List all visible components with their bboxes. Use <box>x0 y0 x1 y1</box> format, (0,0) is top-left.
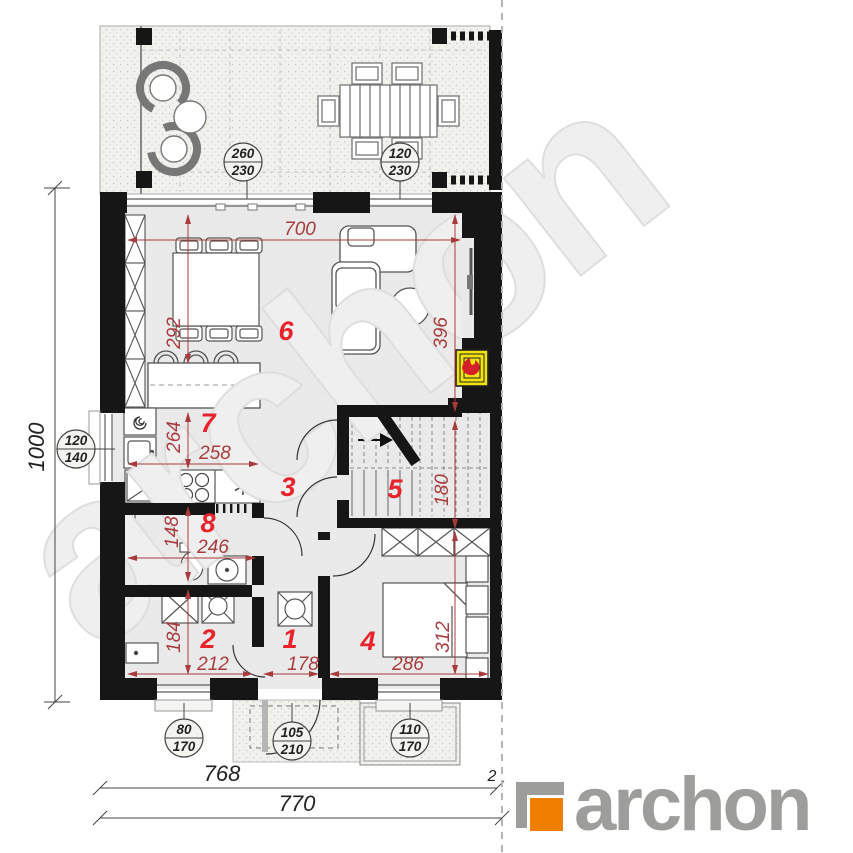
dim-left-1000: 1000 <box>24 422 49 472</box>
svg-text:80: 80 <box>176 722 192 737</box>
entry-door-leaf <box>262 700 268 752</box>
dim-180: 180 <box>432 474 453 506</box>
svg-text:170: 170 <box>173 739 196 754</box>
svg-text:260: 260 <box>231 146 255 161</box>
room-number-8: 8 <box>200 508 215 538</box>
terrace-post <box>136 28 152 45</box>
room-number-1: 1 <box>282 624 297 654</box>
logo-wordmark: archon <box>574 762 809 847</box>
svg-text:120: 120 <box>389 146 412 161</box>
dim-700: 700 <box>284 219 316 240</box>
svg-text:170: 170 <box>399 739 422 754</box>
dim-212: 212 <box>196 654 229 675</box>
dim-gap-2: 2 <box>487 768 497 785</box>
terrace-coffee-table <box>174 101 206 133</box>
dim-184: 184 <box>164 621 185 653</box>
nightstand <box>466 658 488 680</box>
svg-text:210: 210 <box>280 742 304 757</box>
room-number-4: 4 <box>359 626 375 656</box>
logo-orange-square <box>530 798 563 831</box>
dim-396: 396 <box>431 317 452 349</box>
floor-plan-canvas: archon <box>0 0 853 853</box>
dim-258: 258 <box>198 443 231 464</box>
svg-text:230: 230 <box>388 163 412 178</box>
dim-148: 148 <box>162 516 183 548</box>
nightstand <box>466 617 488 653</box>
svg-text:230: 230 <box>231 163 255 178</box>
dim-246: 246 <box>196 537 229 558</box>
svg-text:110: 110 <box>399 722 421 737</box>
room-number-5: 5 <box>387 474 403 504</box>
svg-text:120: 120 <box>65 433 88 448</box>
room-number-7: 7 <box>200 408 217 438</box>
dim-178: 178 <box>287 654 319 675</box>
dim-312: 312 <box>433 621 454 653</box>
svg-text:140: 140 <box>65 450 88 465</box>
floor-plan-drawing: archon <box>0 0 853 853</box>
terrace-post <box>136 171 152 188</box>
fireplace-icon <box>456 350 488 386</box>
hall-cabinet <box>278 592 312 626</box>
dim-bottom-770: 770 <box>279 791 316 816</box>
room-number-2: 2 <box>199 624 215 654</box>
svg-text:105: 105 <box>281 725 304 740</box>
dim-286: 286 <box>391 654 424 675</box>
room-number-3: 3 <box>280 472 295 502</box>
nightstand <box>466 556 488 582</box>
dim-292: 292 <box>164 317 185 350</box>
dim-264: 264 <box>164 421 185 454</box>
nightstand <box>466 586 488 614</box>
tv-niche <box>462 238 474 338</box>
dim-bottom-768: 768 <box>204 761 241 786</box>
terrace-corner-post <box>432 28 447 44</box>
archon-logo: archon <box>516 762 809 847</box>
room-number-6: 6 <box>278 316 294 346</box>
